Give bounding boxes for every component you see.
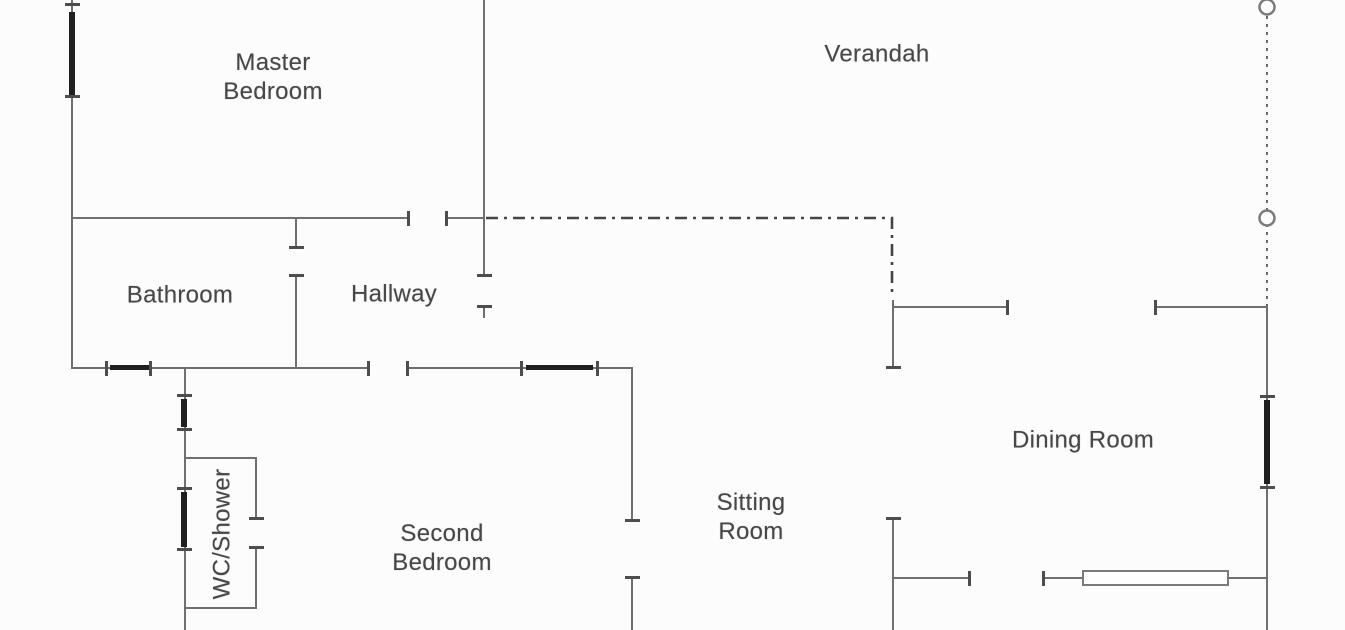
room-label-wc-shower: WC/Shower: [208, 469, 237, 600]
room-label-line: Room: [717, 517, 786, 546]
room-label-line: Master: [223, 48, 322, 77]
room-label-sitting-room: Sitting Room: [717, 488, 786, 546]
verandah-post-icon: [1260, 211, 1275, 226]
floor-plan: Master Bedroom Verandah Bathroom Hallway…: [0, 0, 1345, 630]
room-label-line: WC/Shower: [208, 469, 237, 600]
room-label-line: Bathroom: [127, 281, 233, 310]
room-label-hallway: Hallway: [351, 280, 437, 309]
room-label-line: Bedroom: [392, 548, 491, 577]
verandah-post-icon: [1260, 0, 1275, 15]
room-label-line: Verandah: [824, 40, 929, 69]
room-label-line: Second: [392, 519, 491, 548]
room-label-second-bedroom: Second Bedroom: [392, 519, 491, 577]
room-label-master-bedroom: Master Bedroom: [223, 48, 322, 106]
room-label-line: Hallway: [351, 280, 437, 309]
room-label-line: Sitting: [717, 488, 786, 517]
room-label-line: Dining Room: [1012, 426, 1154, 455]
boundary-overlay: [0, 0, 1345, 630]
room-label-line: Bedroom: [223, 77, 322, 106]
room-label-bathroom: Bathroom: [127, 281, 233, 310]
verandah-boundary-dashdot-line: [486, 218, 892, 298]
room-label-verandah: Verandah: [824, 40, 929, 69]
room-label-dining-room: Dining Room: [1012, 426, 1154, 455]
